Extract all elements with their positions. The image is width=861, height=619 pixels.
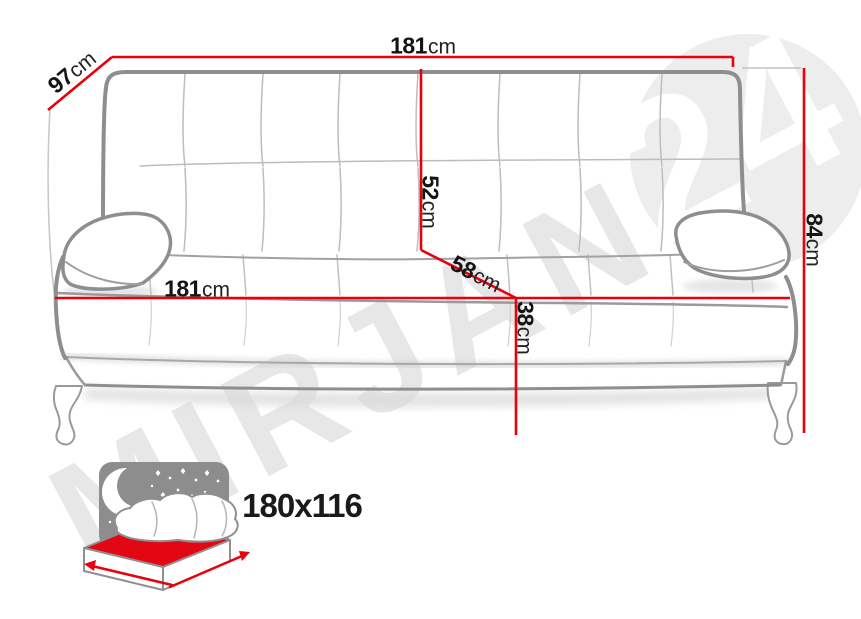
- right-body-edge: [786, 277, 796, 364]
- sofa-drawing: [48, 72, 796, 444]
- arrow-head-right: [239, 551, 250, 561]
- right-armrest-cushion: [676, 211, 789, 278]
- total-height-label: 84cm: [801, 213, 828, 267]
- seat-height-label: 38cm: [512, 301, 539, 355]
- total-width-label: 181cm: [390, 33, 456, 60]
- front-right-leg: [768, 383, 797, 444]
- bed-with-night-sky-icon: [84, 462, 250, 590]
- skirt-left-edge: [66, 357, 85, 385]
- sleeping-area-label: 180x116: [242, 487, 362, 525]
- left-silhouette-line: [48, 110, 54, 292]
- right-arm-shadow: [682, 279, 778, 293]
- backrest-height-label: 52cm: [417, 175, 444, 229]
- front-face-seams: [149, 300, 673, 346]
- sofa-dimension-diagram: MIRJAN 24: [0, 0, 861, 619]
- skirt-bottom-edge: [85, 385, 780, 389]
- seat-width-label: 181cm: [164, 276, 230, 303]
- ground-shadow: [85, 388, 780, 407]
- front-left-leg: [54, 386, 82, 444]
- sofa-line-art: [0, 0, 861, 619]
- left-armrest-cushion: [63, 213, 171, 289]
